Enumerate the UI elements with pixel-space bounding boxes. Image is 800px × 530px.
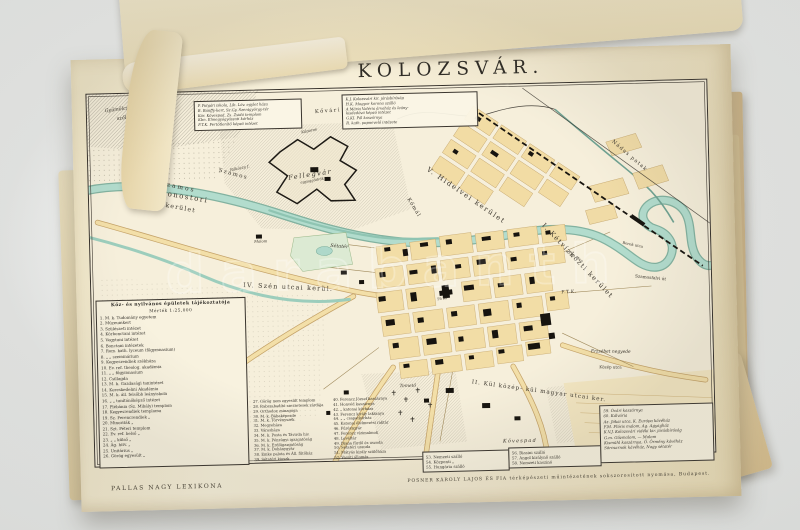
map-label-temeto: Temető — [400, 384, 417, 389]
park-setater — [290, 232, 353, 272]
abbreviations-box-right: K.J. Kolozsvári kir. járásbíróság H.K. M… — [341, 91, 478, 129]
map-label-kozep-utca: Közép utca — [599, 364, 622, 369]
map-label-erzsebet: Erzsébet negyede — [590, 349, 631, 354]
notes-box-right: 59. Óvári kaszárnya 60. Kálvária Az. Jók… — [599, 403, 714, 464]
legend-items-1-26: 1. M. k. Tudomány egyetem 2. Múzeumkert … — [100, 312, 245, 460]
hotels-box-b: 56. Biasini szálló 57. Angol királynő sz… — [508, 445, 601, 468]
legend-items-27-39: 27. Görög nem egyesült templom 28. Rabsz… — [253, 398, 333, 463]
imprint-posner: POSNER KÁROLY LAJOS ÉS FIA térképészeti … — [401, 471, 717, 484]
legend-box: Köz- és nyilvános épületek tájékoztatója… — [95, 297, 249, 469]
imprint-pallas: PALLAS NAGY LEXIKONA — [111, 483, 223, 493]
abbreviations-box-left: P. Polgári iskola, Lib. Löv. egylet háza… — [194, 98, 303, 130]
hotels-box-a: 53. Nemzeti szálló 54. Központi „ 55. Hu… — [422, 450, 509, 473]
map-label-ftk: F.T.K. — [561, 290, 576, 295]
legend-items-40-52: 40. Ferencz József kaszárnya 41. Honvéd … — [333, 396, 419, 461]
map-label-kovespad: Kövespad — [502, 438, 537, 445]
map-label-malom: Malom — [253, 238, 268, 243]
